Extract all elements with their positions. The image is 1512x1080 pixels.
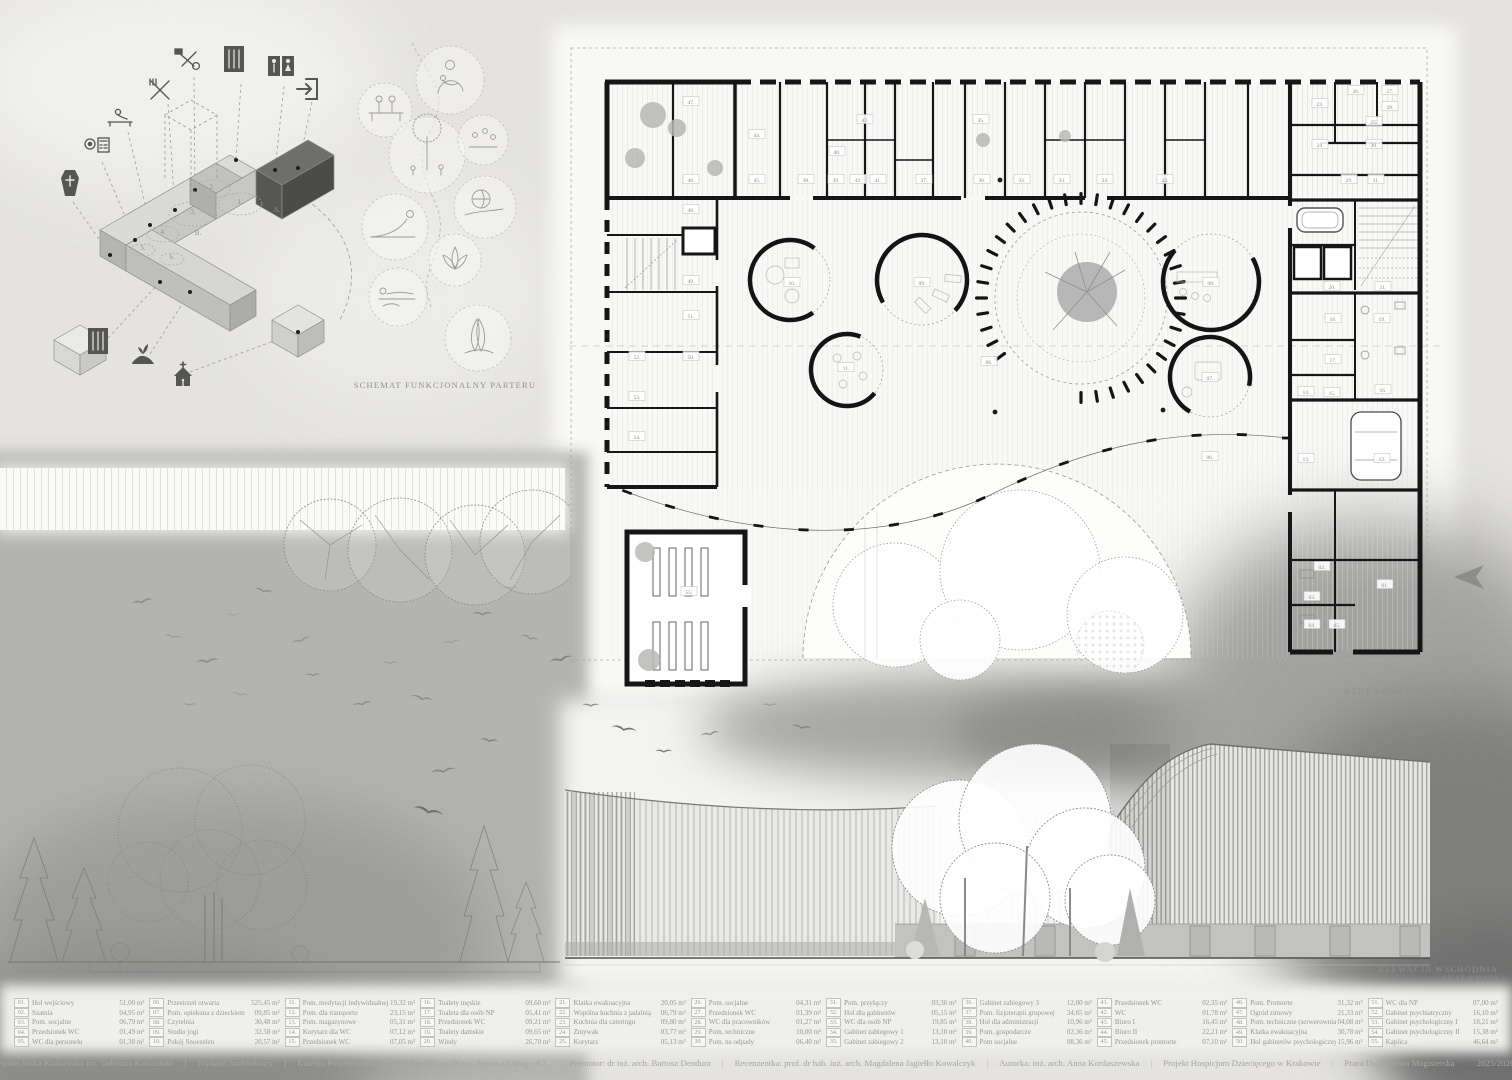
svg-text:07.: 07. — [1207, 376, 1215, 382]
svg-text:29.: 29. — [1346, 178, 1354, 184]
legend-item-area: 525,45 m² — [251, 999, 280, 1007]
legend-item-area: 05,31 m² — [390, 1018, 415, 1026]
vignette-praying-hands — [445, 305, 511, 371]
vignette-yoga-pose — [362, 194, 428, 260]
svg-text:34.: 34. — [1102, 178, 1110, 184]
svg-text:33.: 33. — [1059, 178, 1067, 184]
svg-text:47.: 47. — [688, 100, 696, 106]
legend-item-name: Pom. medytacji indywidualnej — [303, 999, 388, 1007]
legend-item-name: Przedsionek WC — [32, 1028, 117, 1036]
legend-item-name: Biuro II — [1115, 1028, 1200, 1036]
legend-item-name: Przedsionek WC — [709, 1009, 794, 1017]
legend-item-area: 05,13 m² — [661, 1038, 686, 1046]
legend-item-number: 20. — [420, 1037, 435, 1047]
svg-text:16.: 16. — [1380, 388, 1388, 394]
legend-item-area: 10,96 m² — [1067, 1018, 1092, 1026]
legend-item-area: 09,80 m² — [661, 1018, 686, 1026]
footer-segment: Promotor: dr inż. arch. Bartosz Dendura — [569, 1058, 710, 1068]
vignette-circles — [355, 25, 525, 375]
legend-item-area: 06,40 m² — [796, 1038, 821, 1046]
legend-item-name: Gabinet zabiegowy 2 — [844, 1038, 929, 1046]
legend-item-number: 25. — [555, 1037, 570, 1047]
legend-item: 41.Przedsionek WC02,35 m² — [1097, 998, 1227, 1008]
svg-text:42.: 42. — [855, 178, 863, 184]
legend-item-number: 24. — [555, 1028, 570, 1038]
legend-item: 47.Ogród zimowy21,33 m² — [1232, 1008, 1362, 1018]
footer-separator: | — [284, 1058, 286, 1068]
legend-item-name: Biuro I — [1115, 1018, 1200, 1026]
legend-item: 51.WC dla NP07,00 m² — [1368, 998, 1498, 1008]
coffin-icon — [61, 170, 79, 196]
elevation-caption: ELEWACJA WSCHODNIA SKALA 1:100 — [1180, 964, 1498, 983]
legend-item: 01.Hol wejściowy51,00 m² — [14, 998, 144, 1008]
svg-text:B.: B. — [195, 229, 202, 237]
legend-column: 31.Pom. przyłączy03,36 m²32.Hol dla gabi… — [826, 998, 956, 1047]
legend-item-name: Kaplica — [1386, 1038, 1471, 1046]
legend-column: 26.Pom. socjalne04,31 m²27.Przedsionek W… — [691, 998, 821, 1047]
legend-item-name: WC dla NP — [1386, 999, 1471, 1007]
svg-text:21.: 21. — [1380, 285, 1388, 291]
legend-item-name: Gabinet psychiatryczny — [1386, 1009, 1471, 1017]
legend-item-name: Przedsionek promorte — [1115, 1038, 1200, 1046]
legend-item-name: Ogród zimowy — [1250, 1009, 1335, 1017]
legend-item-number: 34. — [826, 1028, 841, 1038]
svg-text:36.: 36. — [979, 178, 987, 184]
legend-item-area: 30,78 m² — [1338, 1028, 1363, 1036]
svg-text:08.: 08. — [1208, 281, 1216, 287]
legend-item-area: 02,35 m² — [1202, 999, 1227, 1007]
legend-item-number: 05. — [14, 1037, 29, 1047]
legend-item-name: Korytarz dla WC — [303, 1028, 388, 1036]
legend-item-number: 17. — [420, 1008, 435, 1018]
svg-text:19.: 19. — [1379, 317, 1387, 323]
legend-item-name: Toaleta dla osób NP — [438, 1009, 523, 1017]
legend-item-number: 16. — [420, 998, 435, 1008]
legend-item-name: Pom. dla transportu — [303, 1009, 388, 1017]
floor-plan: 47.44.40.43.35.46.45.38.39.42.41.37.36.3… — [565, 40, 1445, 690]
svg-text:22.: 22. — [1162, 178, 1170, 184]
legend-item-number: 15. — [285, 1037, 300, 1047]
footer-segment: Politechnika Krakowska im. Tadeusza Kośc… — [0, 1058, 174, 1068]
legend-item: 10.Pokój Snoezelen20,57 m² — [149, 1037, 279, 1047]
legend-item-name: Pom. socjalne — [709, 999, 794, 1007]
legend-item-area: 05,41 m² — [525, 1009, 550, 1017]
legend-item-name: Szatnia — [32, 1009, 117, 1017]
svg-text:40.: 40. — [834, 150, 842, 156]
legend-item: 09.Studio jogi32,58 m² — [149, 1027, 279, 1037]
footer-separator: | — [557, 1058, 559, 1068]
legend-item-area: 22,21 m² — [1202, 1028, 1227, 1036]
legend-item-name: Klatka ewakuacyjna — [573, 999, 658, 1007]
footer-separator: | — [1332, 1058, 1334, 1068]
svg-text:43.: 43. — [862, 118, 870, 124]
legend-item-name: Czytelnia — [167, 1018, 252, 1026]
legend-item: 28.WC dla pracowników01,27 m² — [691, 1018, 821, 1028]
svg-text:30.: 30. — [1371, 143, 1379, 149]
elevator2-icon — [88, 328, 108, 354]
svg-text:3.: 3. — [190, 208, 196, 216]
legend-item: 35.Gabinet zabiegowy 213,10 m² — [826, 1037, 956, 1047]
svg-text:39.: 39. — [833, 178, 841, 184]
legend-item-number: 02. — [14, 1008, 29, 1018]
footer-separator: | — [1150, 1058, 1152, 1068]
legend-item: 33.WC dla osób NP19,85 m² — [826, 1018, 956, 1028]
legend-item-name: WC dla osób NP — [844, 1018, 929, 1026]
legend-item-number: 08. — [149, 1018, 164, 1028]
legend-item-number: 50. — [1232, 1037, 1247, 1047]
svg-text:06.: 06. — [986, 360, 994, 366]
svg-text:41.: 41. — [875, 178, 883, 184]
physiotherapy-icon — [108, 109, 132, 126]
legend-item-area: 02,36 m² — [1067, 1028, 1092, 1036]
legend-item-name: Hol wejściowy — [32, 999, 117, 1007]
svg-text:31.: 31. — [1373, 178, 1381, 184]
legend-item-number: 30. — [691, 1037, 706, 1047]
footer-bar: Politechnika Krakowska im. Tadeusza Kośc… — [0, 1058, 1512, 1068]
legend-item-number: 54. — [1368, 1028, 1383, 1038]
legend-item: 08.Czytelnia30,48 m² — [149, 1018, 279, 1028]
legend-item-area: 04,31 m² — [796, 999, 821, 1007]
footer-segment: Recenzentka: prof. dr hab. inż. arch. Ma… — [735, 1058, 976, 1068]
legend-item: 49.Klatka ewakuacyjna30,78 m² — [1232, 1027, 1362, 1037]
legend-item-area: 09,65 m² — [525, 1028, 550, 1036]
legend-item: 48.Pom. techniczne (serwerownia)04,08 m² — [1232, 1018, 1362, 1028]
legend-item-area: 06,79 m² — [119, 1018, 144, 1026]
footer-separator: | — [986, 1058, 988, 1068]
svg-text:13.: 13. — [1303, 457, 1311, 463]
vignette-children-playing — [458, 115, 508, 165]
legend-item-area: 01,49 m² — [119, 1028, 144, 1036]
legend-table: 01.Hol wejściowy51,00 m²02.Szatnia04,95 … — [14, 998, 1498, 1047]
footer-year: 2025/2026 — [1477, 1058, 1512, 1068]
legend-item-area: 46,64 m² — [1473, 1038, 1498, 1046]
legend-item-area: 13,10 m² — [931, 1028, 956, 1036]
legend-item-number: 39. — [962, 1028, 977, 1038]
legend-item-area: 20,05 m² — [661, 999, 686, 1007]
legend-item-number: 21. — [555, 998, 570, 1008]
legend-item-name: WC dla pracowników — [709, 1018, 794, 1026]
forest-sketch — [0, 720, 565, 1000]
legend-item-number: 19. — [420, 1028, 435, 1038]
legend-item-name: Pom. opiekuna z dzieckiem — [167, 1009, 252, 1017]
legend-item-area: 07,10 m² — [1202, 1038, 1227, 1046]
legend-item-number: 33. — [826, 1018, 841, 1028]
svg-text:A.: A. — [274, 206, 281, 214]
svg-text:4.: 4. — [160, 228, 166, 236]
svg-text:44.: 44. — [754, 133, 762, 139]
legend-item: 34.Gabinet zabiegowy 113,10 m² — [826, 1027, 956, 1037]
legend-item-area: 08,36 m² — [1067, 1038, 1092, 1046]
legend-item-area: 15,38 m² — [1473, 1028, 1498, 1036]
legend-item-name: Hol dla administracji — [980, 1018, 1065, 1026]
facade-left — [565, 790, 937, 956]
svg-text:24.: 24. — [1317, 143, 1325, 149]
legend-item: 30.Pom. na odpady06,40 m² — [691, 1037, 821, 1047]
legend-item: 23.Kuchnia dla cateringu09,80 m² — [555, 1018, 685, 1028]
legend-item-number: 13. — [285, 1018, 300, 1028]
orientation-arrow-icon — [1452, 562, 1486, 592]
legend-item-name: Pom. gospodarcze — [980, 1028, 1065, 1036]
legend-item: 40.Pom socjalne08,36 m² — [962, 1037, 1092, 1047]
legend-item-number: 12. — [285, 1008, 300, 1018]
svg-text:05.: 05. — [1334, 623, 1342, 629]
svg-text:04.: 04. — [1309, 623, 1317, 629]
legend-item: 26.Pom. socjalne04,31 m² — [691, 998, 821, 1008]
east-elevation — [565, 728, 1430, 988]
legend-item-name: Gabinet psychologiczny II — [1386, 1028, 1471, 1036]
legend-item-name: Wspólna kuchnia z jadalnią — [573, 1009, 658, 1017]
legend-item: 20.Windy26,70 m² — [420, 1037, 550, 1047]
legend-item-number: 53. — [1368, 1018, 1383, 1028]
legend-item: 53.Gabinet psychologiczny I18,21 m² — [1368, 1018, 1498, 1028]
legend-item-area: 01,39 m² — [796, 1009, 821, 1017]
scheme-caption: SCHEMAT FUNKCJONALNY PARTERU — [330, 380, 560, 390]
legend-item: 19.Toalety damskie09,65 m² — [420, 1027, 550, 1037]
svg-text:2.: 2. — [209, 183, 215, 191]
legend-item-number: 01. — [14, 998, 29, 1008]
svg-text:15.: 15. — [1329, 391, 1337, 397]
svg-text:49.: 49. — [688, 279, 696, 285]
legend-item-area: 23,15 m² — [390, 1009, 415, 1017]
legend-item: 12.Pom. dla transportu23,15 m² — [285, 1008, 415, 1018]
legend-column: 11.Pom. medytacji indywidualnej19,32 m²1… — [285, 998, 415, 1047]
svg-text:14.: 14. — [1303, 390, 1311, 396]
legend-item: 43.Biuro I16,45 m² — [1097, 1018, 1227, 1028]
legend-item-number: 38. — [962, 1018, 977, 1028]
legend-item-name: Przedsionek WC — [438, 1018, 523, 1026]
legend-item-name: Pom. przyłączy — [844, 999, 929, 1007]
legend-item-area: 01,27 m² — [796, 1018, 821, 1026]
legend-item-number: 42. — [1097, 1008, 1112, 1018]
legend-item: 42.WC01,78 m² — [1097, 1008, 1227, 1018]
legend-item-area: 03,77 m² — [661, 1028, 686, 1036]
legend-item-name: WC — [1115, 1009, 1200, 1017]
legend-item-area: 30,48 m² — [255, 1018, 280, 1026]
legend-item: 31.Pom. przyłączy03,36 m² — [826, 998, 956, 1008]
legend-item-area: 19,85 m² — [931, 1018, 956, 1026]
legend-item-name: WC dla personelu — [32, 1038, 117, 1046]
care-hand-icon — [132, 344, 154, 364]
presentation-board: 1.2.3.4.5.6.A.B. — [0, 0, 1512, 1080]
legend-item-number: 28. — [691, 1018, 706, 1028]
legend-item-number: 32. — [826, 1008, 841, 1018]
svg-text:37.: 37. — [921, 178, 929, 184]
chapel — [627, 532, 751, 687]
legend-item-name: Przestrzeń otwarta — [167, 999, 249, 1007]
svg-text:28.: 28. — [1387, 105, 1395, 111]
legend-item-number: 04. — [14, 1028, 29, 1038]
svg-text:10.: 10. — [789, 281, 797, 287]
legend-item: 37.Pom. fizjoterapii grupowej34,65 m² — [962, 1008, 1092, 1018]
legend-item-name: Kuchnia dla cateringu — [573, 1018, 658, 1026]
legend-item-name: Pom. fizjoterapii grupowej — [980, 1009, 1065, 1017]
svg-text:03.: 03. — [1309, 595, 1317, 601]
legend-item-number: 29. — [691, 1028, 706, 1038]
svg-text:18.: 18. — [1330, 317, 1338, 323]
legend-item-number: 43. — [1097, 1018, 1112, 1028]
tools-icon — [175, 49, 199, 69]
legend-item-area: 06,79 m² — [661, 1009, 686, 1017]
legend-item-number: 48. — [1232, 1018, 1247, 1028]
svg-text:5.: 5. — [140, 244, 146, 252]
svg-text:26.: 26. — [1353, 89, 1361, 95]
legend-item-area: 13,10 m² — [931, 1038, 956, 1046]
legend-item-name: Klatka ewakuacyjna — [1250, 1028, 1335, 1036]
legend-item-area: 19,32 m² — [390, 999, 415, 1007]
legend-item: 05.WC dla personelu01,30 m² — [14, 1037, 144, 1047]
legend-column: 41.Przedsionek WC02,35 m²42.WC01,78 m²43… — [1097, 998, 1227, 1047]
legend-item: 39.Pom. gospodarcze02,36 m² — [962, 1027, 1092, 1037]
footer-segment: Wydział Architektury — [197, 1058, 273, 1068]
legend-item-number: 36. — [962, 998, 977, 1008]
svg-text:17.: 17. — [1330, 358, 1338, 364]
legend-item-name: Gabinet psychologiczny I — [1386, 1018, 1471, 1026]
legend-item-name: Toalety damskie — [438, 1028, 523, 1036]
svg-text:51.: 51. — [688, 314, 696, 320]
legend-item-name: Przedsionek WC — [303, 1038, 388, 1046]
legend-item-area: 16,45 m² — [1202, 1018, 1227, 1026]
svg-text:38.: 38. — [803, 178, 811, 184]
legend-item-area: 04,95 m² — [119, 1009, 144, 1017]
svg-text:48.: 48. — [688, 208, 696, 214]
svg-text:52.: 52. — [634, 355, 642, 361]
legend-item-number: 51. — [1368, 998, 1383, 1008]
svg-text:6.: 6. — [169, 253, 175, 261]
legend-item-number: 09. — [149, 1028, 164, 1038]
legend-item-number: 45. — [1097, 1037, 1112, 1047]
plan-caption: RZUT KONDYGNACJI PARTERU SKALA 1:100 — [1180, 686, 1498, 705]
legend-item-name: Pom. socjalne — [32, 1018, 117, 1026]
legend-item-area: 09,60 m² — [525, 999, 550, 1007]
svg-text:23.: 23. — [1317, 102, 1325, 108]
legend-item-number: 23. — [555, 1018, 570, 1028]
legend-item-area: 34,65 m² — [1067, 1009, 1092, 1017]
legend-item-name: Windy — [438, 1038, 523, 1046]
legend-column: 46.Pom. Promorte31,32 m²47.Ogród zimowy2… — [1232, 998, 1362, 1047]
legend-item-name: Przedsionek WC — [1115, 999, 1200, 1007]
svg-text:27.: 27. — [1387, 89, 1395, 95]
legend-item: 13.Pom. magazynowe05,31 m² — [285, 1018, 415, 1028]
legend-item: 27.Przedsionek WC01,39 m² — [691, 1008, 821, 1018]
legend-item-number: 31. — [826, 998, 841, 1008]
legend-item-area: 03,36 m² — [931, 999, 956, 1007]
elevator-left — [683, 228, 715, 254]
legend-item: 03.Pom. socjalne06,79 m² — [14, 1018, 144, 1028]
legend-item-number: 10. — [149, 1037, 164, 1047]
legend-item: 52.Gabinet psychiatryczny16,10 m² — [1368, 1008, 1498, 1018]
svg-text:54.: 54. — [634, 435, 642, 441]
legend-item-number: 11. — [285, 998, 300, 1008]
legend-item-area: 07,05 m² — [390, 1038, 415, 1046]
legend-item: 50.Hol gabinetów psychologicznych15,96 m… — [1232, 1037, 1362, 1047]
legend-item-number: 26. — [691, 998, 706, 1008]
legend-item-number: 52. — [1368, 1008, 1383, 1018]
entrance-icon — [297, 79, 317, 99]
svg-text:25.: 25. — [1371, 120, 1379, 126]
svg-text:46.: 46. — [688, 178, 696, 184]
chapel-icon — [174, 362, 192, 386]
legend-item-name: Pom. Promorte — [1250, 999, 1335, 1007]
svg-text:35.: 35. — [978, 118, 986, 124]
legend-item-number: 41. — [1097, 998, 1112, 1008]
vignette-mother-child — [416, 46, 484, 114]
svg-text:06.: 06. — [1207, 455, 1215, 461]
legend-item: 22.Wspólna kuchnia z jadalnią06,79 m² — [555, 1008, 685, 1018]
legend-item-area: 05,15 m² — [931, 1009, 956, 1017]
legend-item: 11.Pom. medytacji indywidualnej19,32 m² — [285, 998, 415, 1008]
svg-text:01.: 01. — [1382, 583, 1390, 589]
legend-item: 07.Pom. opiekuna z dzieckiem09,85 m² — [149, 1008, 279, 1018]
legend-item: 21.Klatka ewakuacyjna20,05 m² — [555, 998, 685, 1008]
legend-column: 21.Klatka ewakuacyjna20,05 m²22.Wspólna … — [555, 998, 685, 1047]
svg-text:09.: 09. — [919, 281, 927, 287]
footer-separator: | — [185, 1058, 187, 1068]
legend-item: 54.Gabinet psychologiczny II15,38 m² — [1368, 1027, 1498, 1037]
legend-item-area: 07,12 m² — [390, 1028, 415, 1036]
legend-item: 04.Przedsionek WC01,49 m² — [14, 1027, 144, 1037]
legend-item-name: Zmywak — [573, 1028, 658, 1036]
legend-column: 06.Przestrzeń otwarta525,45 m²07.Pom. op… — [149, 998, 279, 1047]
legend-item-name: Pom. na odpady — [709, 1038, 794, 1046]
legend-item-name: Korytarz — [573, 1038, 658, 1046]
legend-item: 24.Zmywak03,77 m² — [555, 1027, 685, 1037]
svg-text:50.: 50. — [688, 355, 696, 361]
vignette-lotus-flower — [429, 234, 481, 286]
svg-text:32.: 32. — [1019, 178, 1027, 184]
svg-text:55.: 55. — [686, 590, 694, 596]
legend-item: 18.Przedsionek WC09,21 m² — [420, 1018, 550, 1028]
legend-item-area: 12,00 m² — [1067, 999, 1092, 1007]
svg-text:11.: 11. — [843, 366, 850, 372]
legend-item-number: 47. — [1232, 1008, 1247, 1018]
legend-item-area: 18,21 m² — [1473, 1018, 1498, 1026]
legend-item-name: Hol dla gabinetów — [844, 1009, 929, 1017]
footer-segment: Katedra Projektowania Architektury Miejs… — [297, 1058, 546, 1068]
legend-item: 29.Pom. techniczne10,00 m² — [691, 1027, 821, 1037]
legend-item-area: 26,70 m² — [525, 1038, 550, 1046]
legend-item-area: 01,78 m² — [1202, 1009, 1227, 1017]
legend-item-number: 27. — [691, 1008, 706, 1018]
vignette-resting-person — [369, 268, 427, 326]
legend-item: 14.Korytarz dla WC07,12 m² — [285, 1027, 415, 1037]
legend-item: 02.Szatnia04,95 m² — [14, 1008, 144, 1018]
footer-segment: Projekt Hospicjum Dziecięcego w Krakowie — [1163, 1058, 1320, 1068]
legend-item: 06.Przestrzeń otwarta525,45 m² — [149, 998, 279, 1008]
legend-item-name: Pom. techniczne — [709, 1028, 794, 1036]
legend-item-number: 44. — [1097, 1028, 1112, 1038]
legend-item-name: Pom. techniczne (serwerownia) — [1250, 1018, 1335, 1026]
legend-item-area: 51,00 m² — [119, 999, 144, 1007]
legend-item-name: Pom socjalne — [980, 1038, 1065, 1046]
legend-item-area: 01,30 m² — [119, 1038, 144, 1046]
legend-item-area: 16,10 m² — [1473, 1009, 1498, 1017]
legend-item-area: 21,33 m² — [1338, 1009, 1363, 1017]
legend-item-number: 07. — [149, 1008, 164, 1018]
legend-item: 45.Przedsionek promorte07,10 m² — [1097, 1037, 1227, 1047]
legend-item-area: 31,32 m² — [1338, 999, 1363, 1007]
legend-item-number: 37. — [962, 1008, 977, 1018]
legend-item-number: 55. — [1368, 1037, 1383, 1047]
legend-item: 46.Pom. Promorte31,32 m² — [1232, 998, 1362, 1008]
elevator-icon — [224, 46, 244, 72]
legend-item-area: 09,85 m² — [255, 1009, 280, 1017]
admin-icon — [85, 138, 109, 152]
legend-column: 01.Hol wejściowy51,00 m²02.Szatnia04,95 … — [14, 998, 144, 1047]
legend-item-number: 18. — [420, 1018, 435, 1028]
legend-item: 25.Korytarz05,13 m² — [555, 1037, 685, 1047]
svg-text:02.: 02. — [1319, 565, 1327, 571]
legend-item-name: Gabinet zabiegowy 1 — [844, 1028, 929, 1036]
